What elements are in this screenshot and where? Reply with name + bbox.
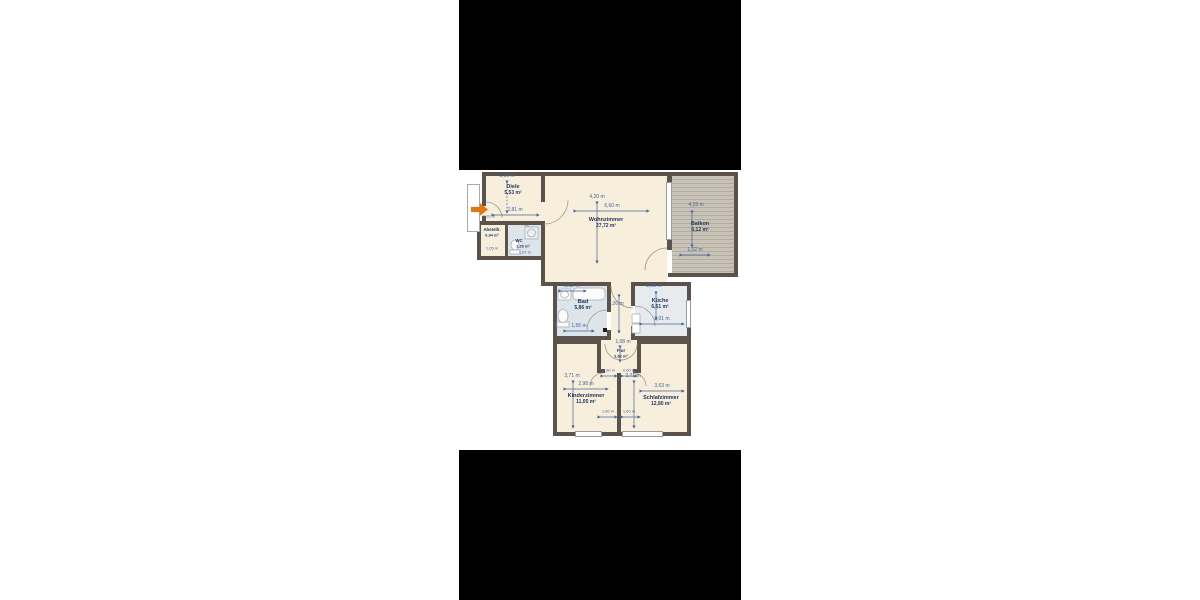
floor-corridor: [611, 282, 631, 340]
wall-lower-top-right: [637, 340, 691, 344]
wall-lower-top-left: [553, 340, 601, 344]
room-area-diele: 5,53 m²: [504, 191, 521, 197]
room-area-kinderzimmer: 11,05 m²: [576, 400, 596, 406]
dim-flur-door-left: 0,60 m: [603, 369, 615, 373]
dim-window-left: 1,60 m: [602, 410, 614, 414]
dim-bad-top: 2,12 m: [564, 284, 579, 290]
wall-mid-right-a: [687, 282, 691, 300]
dim-kueche-bottom: 3,01 m: [654, 317, 669, 323]
dim-kueche-top: 2,15 m: [646, 284, 661, 290]
wall-diele-right-lower: [541, 221, 545, 286]
letterbox-top: [459, 0, 741, 170]
dim-wohnzimmer-width: 6,60 m: [604, 204, 619, 210]
wall-bedroom-divider: [617, 373, 621, 436]
room-area-flur: 3,62 m²: [614, 355, 628, 359]
room-area-wohnzimmer: 27,72 m²: [596, 224, 616, 230]
window-kinderzimmer: [575, 431, 602, 437]
wall-balkon-bottom: [668, 273, 738, 277]
dim-abstell-top: 0,92 m: [483, 215, 495, 219]
letterbox-bottom: [459, 450, 741, 600]
window-kueche: [686, 300, 691, 328]
dim-schlafzimmer-width: 3,63 m: [654, 384, 669, 390]
wall-upper-left: [482, 172, 486, 206]
floorplan: 1,90 m Diele 5,53 m² 2,81 m 0,92 m Abste…: [459, 170, 741, 450]
window-balkon: [666, 182, 672, 240]
room-area-kueche: 6,51 m²: [651, 305, 668, 311]
dim-diele-top: 1,90 m: [499, 174, 514, 180]
dim-balkon-width: 1,02 m: [687, 248, 702, 254]
room-area-abstell: 0,94 m²: [485, 234, 499, 238]
wall-smallrooms-bottom: [477, 256, 545, 260]
dim-bad-bottom: 1,56 m: [571, 324, 586, 330]
dim-flur-height: 1,08 m: [615, 340, 630, 346]
room-label-wc: WC: [515, 239, 522, 244]
wall-lower-right: [687, 344, 691, 436]
dim-kinderzimmer-height: 3,71 m: [564, 374, 579, 380]
room-area-bad: 5,86 m²: [574, 306, 591, 312]
wall-balkon-inner-b: [667, 240, 672, 250]
room-area-schlafzimmer: 12,80 m²: [651, 402, 671, 408]
window-schlafzimmer: [622, 431, 663, 437]
wall-kueche-left-a: [631, 286, 635, 306]
floorplan-media-column: 1,90 m Diele 5,53 m² 2,81 m 0,92 m Abste…: [459, 0, 741, 600]
wall-top: [482, 172, 736, 176]
dim-corridor-height: 2,26 m: [608, 302, 623, 308]
dim-abstell-bottom: 1,05 m: [486, 247, 498, 251]
dim-window-right: 1,60 m: [623, 410, 635, 414]
room-area-balkon: 6,12 m²: [691, 228, 708, 234]
room-label-flur: Flur: [617, 349, 625, 354]
dim-kinderzimmer-width: 2,98 m: [578, 382, 593, 388]
dim-wohnzimmer-height: 4,20 m: [589, 195, 604, 201]
dim-diele-width: 2,81 m: [507, 208, 522, 214]
dim-balkon-height: 4,19 m: [688, 203, 703, 209]
wall-bad-right-a: [607, 286, 611, 312]
room-area-wc: 1,29 m²: [516, 245, 530, 249]
wall-abstell-wc-divider: [505, 225, 508, 256]
wall-lower-left: [553, 344, 557, 436]
floor-kinderzimmer: [557, 344, 617, 432]
wall-smallrooms-top: [477, 221, 545, 225]
dim-schlafzimmer-height: 3,71 m: [625, 374, 640, 380]
wall-diele-right-upper: [541, 176, 545, 202]
wall-balkon-right: [734, 172, 738, 277]
dim-wc-bottom: 1,07 m: [519, 251, 531, 255]
floor-kueche: [635, 286, 687, 336]
wall-mid-left: [553, 282, 557, 340]
room-label-abstell: Abstellr.: [483, 228, 500, 233]
